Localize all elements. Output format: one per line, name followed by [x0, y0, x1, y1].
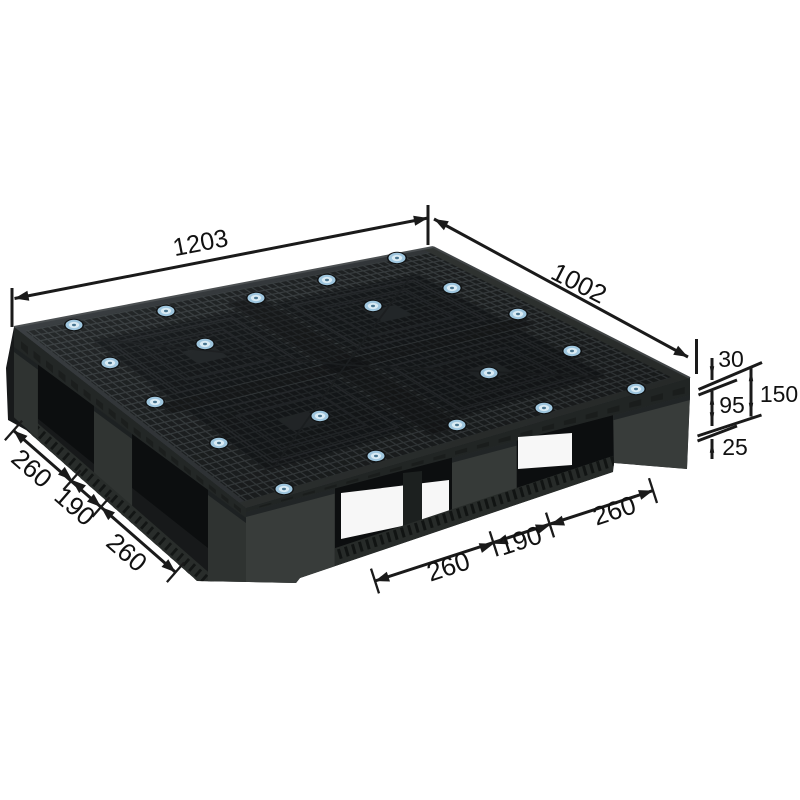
svg-text:150: 150	[760, 381, 798, 407]
svg-text:30: 30	[718, 346, 744, 372]
svg-text:95: 95	[719, 392, 745, 418]
svg-text:25: 25	[722, 434, 748, 460]
